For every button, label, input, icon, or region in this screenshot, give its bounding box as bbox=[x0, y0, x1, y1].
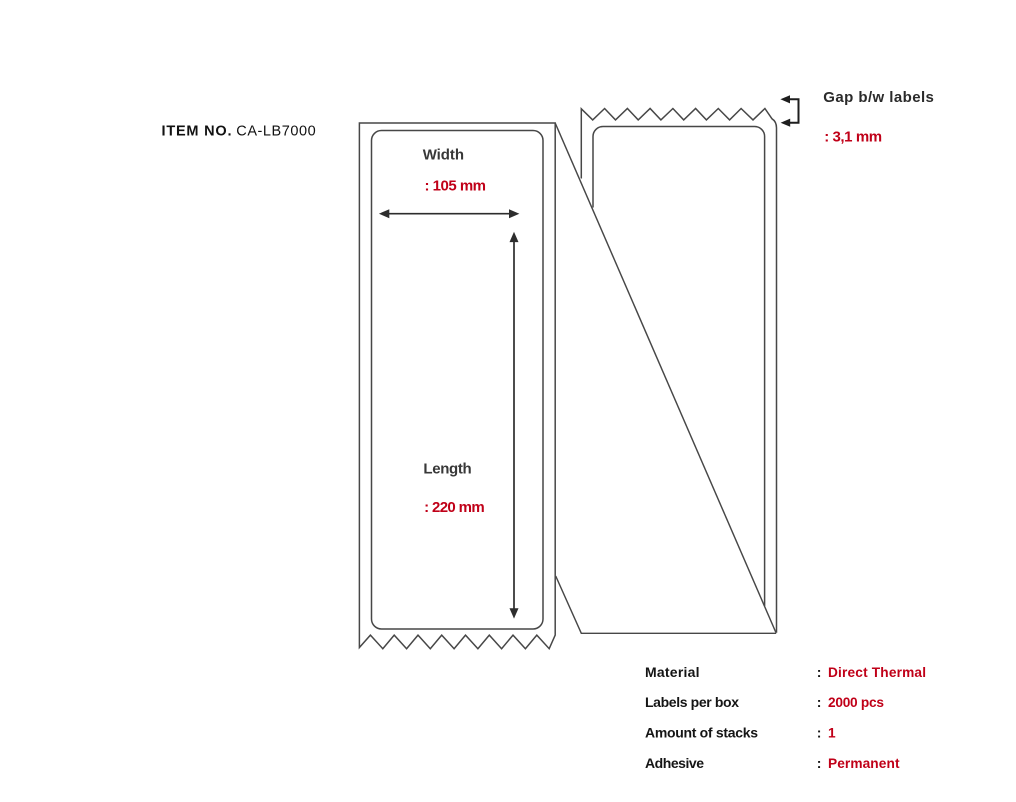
svg-text:Length: Length bbox=[423, 460, 471, 477]
svg-text::: : bbox=[817, 664, 822, 680]
svg-text:ITEM NO.: ITEM NO. bbox=[162, 123, 232, 139]
svg-text:: 3,1 mm: : 3,1 mm bbox=[824, 129, 882, 146]
svg-text:Adhesive: Adhesive bbox=[645, 755, 704, 771]
svg-text:Direct Thermal: Direct Thermal bbox=[828, 665, 926, 680]
svg-text:Gap b/w labels: Gap b/w labels bbox=[823, 89, 934, 106]
svg-text::: : bbox=[817, 725, 822, 741]
svg-text::: : bbox=[817, 755, 822, 771]
svg-text:: 105 mm: : 105 mm bbox=[425, 177, 487, 194]
svg-text:Permanent: Permanent bbox=[828, 756, 900, 771]
svg-text:CA-LB7000: CA-LB7000 bbox=[236, 123, 315, 139]
svg-text:1: 1 bbox=[828, 726, 836, 741]
svg-text:Labels per box: Labels per box bbox=[645, 694, 739, 710]
svg-text:2000 pcs: 2000 pcs bbox=[828, 695, 884, 710]
svg-text:: 220 mm: : 220 mm bbox=[424, 499, 485, 516]
svg-text::: : bbox=[817, 694, 822, 710]
svg-text:Width: Width bbox=[423, 146, 464, 163]
svg-text:Amount of stacks: Amount of stacks bbox=[645, 725, 758, 741]
svg-text:Material: Material bbox=[645, 664, 700, 680]
